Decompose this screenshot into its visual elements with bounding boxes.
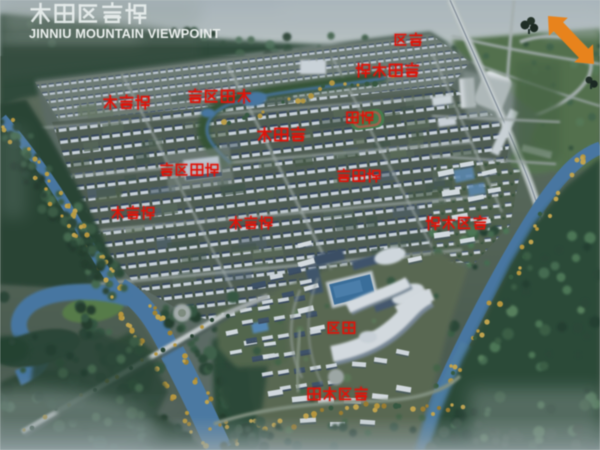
svg-text:JINNIU MOUNTAIN VIEWPOINT: JINNIU MOUNTAIN VIEWPOINT: [29, 26, 220, 41]
